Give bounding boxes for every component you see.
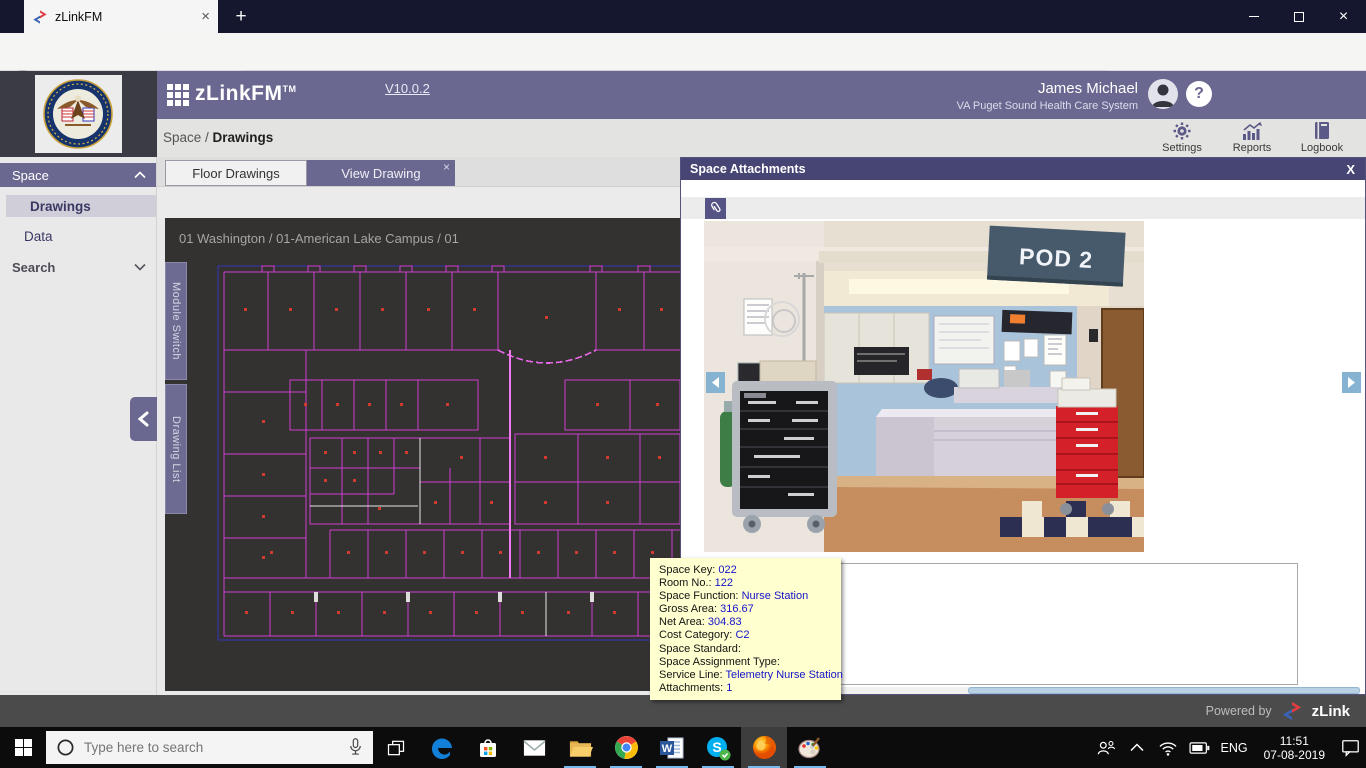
taskbar-skype[interactable]: S [695,727,741,768]
microphone-icon[interactable] [348,738,363,757]
modal-close-button[interactable]: X [1346,162,1355,177]
battery-glyph [1189,742,1210,754]
tab-close-icon[interactable]: × [201,8,210,25]
system-tray: ENG 11:51 07-08-2019 [1091,727,1366,768]
zlinkfm-app: zLinkFMTM V10.0.2 James Michael VA Puget… [0,71,1366,727]
skype-icon: S [705,735,731,761]
people-glyph [1096,739,1116,757]
action-center-glyph [1341,739,1360,757]
browser-toolbar: zLink Inc. (US) https://demo.zlinkfm.com… [0,33,1366,71]
chevron-down-icon [134,263,146,271]
sidebar-item-data[interactable]: Data [0,225,156,247]
cortana-icon [56,738,75,757]
clock-time: 11:51 [1264,734,1325,748]
file-explorer-icon [568,737,593,759]
drawing-location-breadcrumb: 01 Washington / 01-American Lake Campus … [179,231,459,246]
battery-icon[interactable] [1184,727,1215,768]
taskbar-file-explorer[interactable] [557,727,603,768]
start-button[interactable] [0,727,46,768]
nurse-station-photo: POD 2 [704,221,1144,552]
maximize-icon [1294,12,1304,22]
version-link[interactable]: V10.0.2 [385,81,430,96]
action-center-icon[interactable] [1335,727,1366,768]
avatar[interactable] [1148,79,1178,109]
settings-button[interactable]: Settings [1154,121,1210,154]
clock-date: 07-08-2019 [1264,748,1325,762]
taskbar-store[interactable] [465,727,511,768]
taskbar-word[interactable]: W [649,727,695,768]
edge-icon [429,735,455,761]
paint-icon [797,735,823,761]
screen: zLinkFM × + × zLink Inc. (US) https://de… [0,0,1366,768]
drawing-list-tab[interactable]: Drawing List [165,384,187,514]
reports-button[interactable]: Reports [1224,121,1280,154]
tray-expand-chevron[interactable] [1122,727,1153,768]
book-icon [1313,121,1331,141]
tab-floor-drawings[interactable]: Floor Drawings [165,160,307,186]
window-maximize-button[interactable] [1276,0,1321,33]
user-name: James Michael [1038,80,1138,97]
user-organization: VA Puget Sound Health Care System [957,100,1138,112]
attach-file-button[interactable] [705,198,726,219]
taskbar-paint[interactable] [787,727,833,768]
browser-tab[interactable]: zLinkFM × [24,0,218,33]
modal-title: Space Attachments [690,162,806,176]
sidebar-item-drawings[interactable]: Drawings [6,195,156,217]
avatar-person-icon [1148,79,1178,109]
app-header: zLinkFMTM V10.0.2 James Michael VA Puget… [157,71,1366,119]
tab-close-icon[interactable]: × [443,160,450,174]
chevron-up-icon [1130,743,1144,752]
taskbar-firefox[interactable] [741,727,787,768]
task-view-button[interactable] [373,727,419,768]
tab-view-drawing[interactable]: View Drawing× [307,160,455,186]
help-button[interactable]: ? [1186,81,1212,107]
minimize-icon [1249,16,1259,18]
zlink-logo-icon [1281,700,1303,722]
chevron-up-icon [134,171,146,179]
browser-tab-bar: zLinkFM × + × [0,0,1366,33]
attachment-toolbar [681,197,1365,219]
next-photo-button[interactable] [1342,372,1361,393]
logbook-button[interactable]: Logbook [1294,121,1350,154]
window-close-button[interactable]: × [1321,0,1366,33]
zlink-brand-label: zLink [1312,703,1350,720]
firefox-icon [751,734,778,761]
store-icon [476,736,500,760]
windows-logo-icon [15,739,32,756]
search-input[interactable] [84,740,339,755]
sidebar-group-space[interactable]: Space [0,163,156,187]
breadcrumb-bar: Space / Drawings Settings Reports Logboo… [157,119,1366,157]
app-grid-icon[interactable] [166,83,190,107]
new-tab-button[interactable]: + [228,4,254,30]
app-logo: zLinkFMTM [195,82,297,106]
tab-title: zLinkFM [55,10,194,24]
breadcrumb: Space / Drawings [163,130,273,145]
taskbar-search[interactable] [46,731,373,764]
windows-taskbar: W S [0,727,1366,768]
tm-mark: TM [283,84,297,94]
people-icon[interactable] [1091,727,1122,768]
zlink-favicon [32,9,48,25]
window-minimize-button[interactable] [1231,0,1276,33]
va-seal [35,75,122,153]
word-icon: W [659,736,685,760]
space-info-tooltip: Space Key: 022 Room No.: 122 Space Funct… [650,558,841,700]
chevron-left-icon [137,411,150,427]
taskbar-clock[interactable]: 11:51 07-08-2019 [1254,734,1335,762]
previous-photo-button[interactable] [706,372,725,393]
language-indicator[interactable]: ENG [1215,741,1254,755]
wifi-icon[interactable] [1153,727,1184,768]
taskbar-mail[interactable] [511,727,557,768]
paperclip-icon [709,201,723,216]
arrow-left-icon [710,376,721,389]
svg-text:W: W [662,743,673,755]
attachment-photo: POD 2 [704,221,1144,552]
sidebar-group-search[interactable]: Search [0,255,156,279]
taskbar-chrome[interactable] [603,727,649,768]
chrome-icon [614,735,639,760]
task-view-icon [386,738,406,758]
floor-plan-cad-drawing[interactable] [210,262,680,652]
module-switch-tab[interactable]: Module Switch [165,262,187,380]
wifi-glyph [1158,740,1178,756]
arrow-right-icon [1346,376,1357,389]
gear-icon [1172,121,1192,141]
pod2-sign-text: POD 2 [1019,243,1094,273]
mail-icon [522,737,547,759]
sidebar-collapse-button[interactable] [130,397,157,441]
va-seal-block [0,71,157,157]
taskbar-edge[interactable] [419,727,465,768]
scrollbar-thumb[interactable] [968,687,1360,694]
modal-title-bar[interactable]: Space Attachments X [681,158,1365,180]
powered-by-label: Powered by [1206,704,1272,718]
chart-icon [1241,121,1263,141]
